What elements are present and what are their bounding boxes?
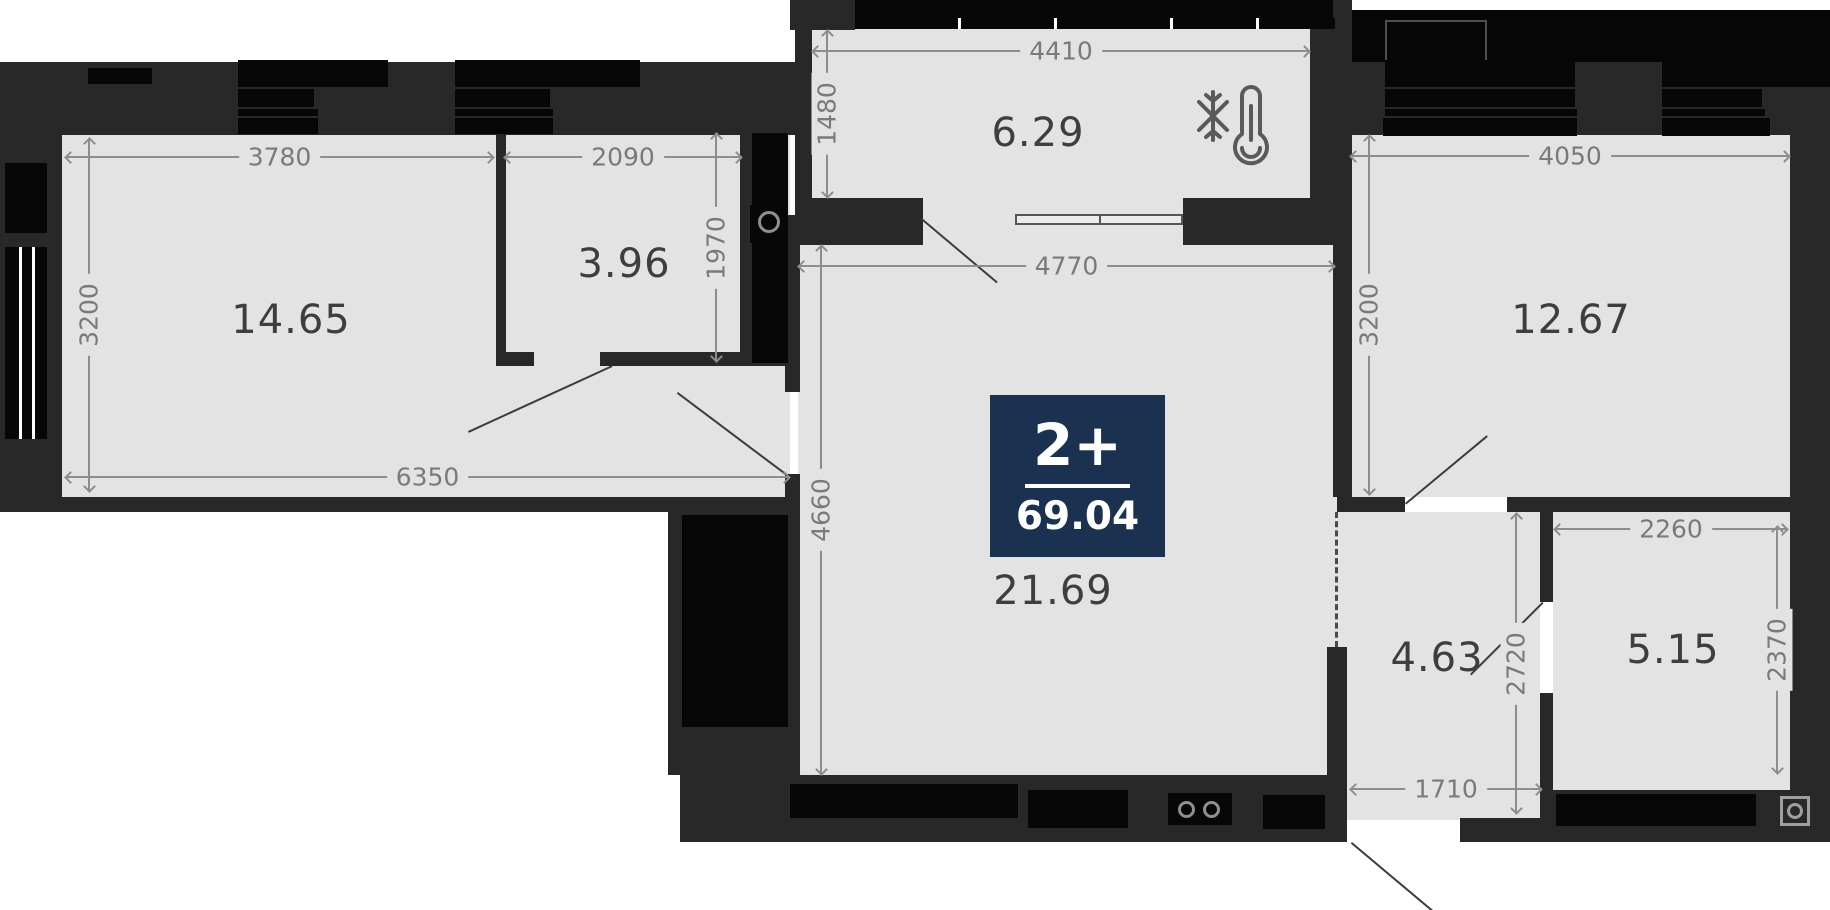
room-area-label: 3.96 <box>577 241 670 287</box>
wall-segment <box>0 497 680 512</box>
wall-segment <box>795 198 923 245</box>
window-mullion <box>19 247 22 439</box>
thermometer-snowflake-icon <box>1193 84 1273 174</box>
glazing-mullion <box>1170 18 1173 29</box>
duct-shaft-block <box>752 243 788 363</box>
burner-circle <box>1178 801 1195 818</box>
dimension-label: 3780 <box>239 142 321 173</box>
wall-segment <box>1540 510 1553 602</box>
floor-plan: 3780 2090 3200 1970 6350 4410 1480 4770 … <box>0 0 1830 910</box>
dimension-label: 2720 <box>1501 623 1532 705</box>
balcony-glazing-frame <box>855 0 1333 18</box>
dimension-label: 1480 <box>812 73 843 155</box>
room-floor-14-65 <box>57 130 790 497</box>
window-block <box>455 89 550 107</box>
dimension-label: 1710 <box>1405 774 1487 805</box>
wall-segment <box>1333 245 1352 497</box>
window-sill <box>238 109 318 116</box>
window-sill <box>1385 109 1577 116</box>
plan-badge: 2+ 69.04 <box>990 395 1165 557</box>
dimension-label: 2090 <box>582 142 664 173</box>
dimension-label: 3200 <box>1354 274 1385 356</box>
burner-circle <box>1203 801 1220 818</box>
wall-segment <box>1790 62 1830 512</box>
wall-segment <box>1327 647 1347 775</box>
room-area-label: 21.69 <box>993 568 1113 614</box>
wall-segment <box>496 135 506 357</box>
glazing-mullion <box>1054 18 1057 29</box>
balcony-inner-window <box>1015 214 1183 225</box>
wall-segment <box>1790 512 1830 790</box>
window-block <box>238 89 314 107</box>
room-area-label: 5.15 <box>1626 627 1719 673</box>
window-block <box>5 247 47 439</box>
window-mullion <box>32 247 35 439</box>
glazing-mullion <box>1256 18 1259 29</box>
kitchen-counter-block <box>1028 790 1128 828</box>
bath-fixture-block <box>1556 794 1756 826</box>
wall-segment <box>1540 693 1553 790</box>
dimension-label: 1970 <box>701 207 732 289</box>
window-block <box>1662 60 1830 87</box>
window-block <box>1662 89 1762 107</box>
kitchen-counter-block <box>790 784 1018 818</box>
window-block <box>88 68 152 84</box>
room-area-label: 14.65 <box>231 297 351 343</box>
window-sill <box>1662 109 1765 116</box>
dimension-label: 4660 <box>806 469 837 551</box>
window-block <box>238 60 388 87</box>
window-block <box>1662 118 1770 136</box>
vent-circle <box>1787 803 1803 819</box>
window-block <box>238 118 318 134</box>
window-block <box>455 60 640 87</box>
ventilation-icon <box>758 211 780 233</box>
wall-segment <box>496 352 534 366</box>
wall-segment <box>1460 818 1540 842</box>
window-block <box>5 163 47 233</box>
balcony-glazing <box>855 18 1335 29</box>
duct-shaft-block <box>752 133 788 205</box>
duct-shaft-block <box>682 515 788 727</box>
window-block <box>1385 89 1575 107</box>
wall-segment <box>795 25 812 200</box>
dimension-label: 3200 <box>74 274 105 356</box>
wall-segment <box>1337 497 1405 512</box>
dimension-label: 4410 <box>1020 36 1102 67</box>
open-plan-divider-dashed <box>1335 512 1338 647</box>
badge-room-count: 2+ <box>1033 416 1122 474</box>
dimension-label: 2370 <box>1762 609 1793 691</box>
wall-segment <box>790 0 855 30</box>
window-block <box>1385 60 1575 87</box>
dimension-label: 2260 <box>1630 514 1712 545</box>
wall-segment <box>740 135 752 366</box>
badge-divider <box>1025 484 1130 488</box>
dimension-label: 4770 <box>1026 251 1108 282</box>
room-area-label: 6.29 <box>991 110 1084 156</box>
room-area-label: 12.67 <box>1511 297 1631 343</box>
window-block <box>1383 118 1577 136</box>
entrance-door-swing-line <box>1351 842 1433 910</box>
wall-segment <box>1507 497 1830 512</box>
window-block <box>455 118 553 134</box>
dimension-label: 6350 <box>387 462 469 493</box>
room-area-label: 4.63 <box>1390 635 1483 681</box>
window-sill <box>455 109 553 116</box>
wall-segment <box>1310 0 1352 245</box>
kitchen-counter-block <box>1263 795 1325 829</box>
glazing-mullion <box>958 18 961 29</box>
glazing-mullion <box>1099 216 1101 223</box>
badge-total-area: 69.04 <box>1016 497 1139 536</box>
dimension-label: 4050 <box>1529 141 1611 172</box>
